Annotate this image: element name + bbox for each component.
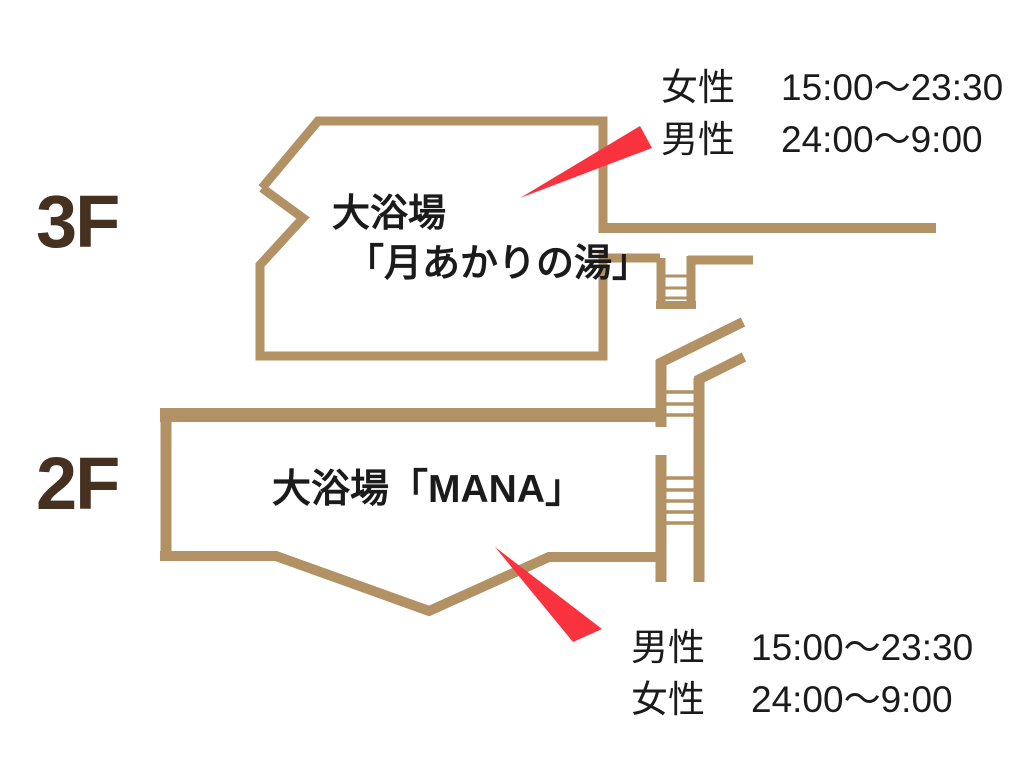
floor-label-2f: 2F [36, 447, 118, 521]
schedule-row: 男性 24:00〜9:00 [661, 110, 1003, 162]
floor-label-3f: 3F [36, 185, 118, 259]
gender-label: 男性 [661, 109, 737, 163]
ramp-wall-upper [658, 322, 743, 364]
bath-name-3f-line2: 「月あかりの湯」 [346, 240, 650, 288]
2f-room-wall-bottom [160, 556, 657, 611]
time-range: 15:00〜23:30 [781, 57, 1003, 111]
gender-label: 女性 [661, 57, 737, 111]
ramp-wall-lower [696, 357, 744, 381]
schedule-3f: 女性 15:00〜23:30 男性 24:00〜9:00 [661, 58, 1003, 162]
time-range: 24:00〜9:00 [781, 109, 983, 163]
time-range: 15:00〜23:30 [751, 617, 973, 671]
schedule-2f: 男性 15:00〜23:30 女性 24:00〜9:00 [631, 618, 973, 722]
floor-plan-diagram: 3F 2F 大浴場 「月あかりの湯」 大浴場「MANA」 女性 15:00〜23… [0, 0, 1024, 772]
bath-name-2f: 大浴場「MANA」 [272, 466, 584, 514]
bath-name-3f-line1: 大浴場 [332, 190, 446, 238]
gender-label: 女性 [631, 669, 707, 723]
arrow-3f-pointer [520, 126, 652, 198]
time-range: 24:00〜9:00 [751, 669, 953, 723]
gender-label: 男性 [631, 617, 707, 671]
schedule-row: 女性 15:00〜23:30 [661, 58, 1003, 110]
schedule-row: 女性 24:00〜9:00 [631, 670, 973, 722]
schedule-row: 男性 15:00〜23:30 [631, 618, 973, 670]
